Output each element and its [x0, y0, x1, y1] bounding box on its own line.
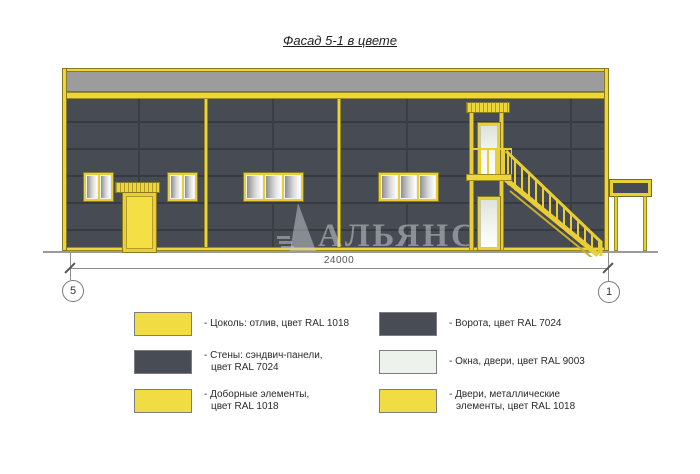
- landing-platform: [466, 174, 512, 181]
- facade-drawing-sheet: Фасад 5-1 в цвете: [0, 0, 700, 474]
- stair-handrail: [506, 151, 602, 243]
- panel-seam: [66, 121, 605, 123]
- window-pane: [86, 175, 98, 199]
- legend-label: элементы, цвет RAL 1018: [456, 401, 575, 413]
- legend-item: - Окна, двери, цвет RAL 9003: [379, 350, 585, 374]
- legend-label: - Двери, металлические: [449, 389, 575, 401]
- upper-yellow-band: [62, 92, 609, 99]
- external-staircase: [500, 145, 610, 257]
- parapet-band: [66, 71, 605, 92]
- window: [83, 172, 114, 202]
- legend-swatch: [134, 389, 192, 413]
- legend-item: - Двери, металлические элементы, цвет RA…: [379, 389, 575, 413]
- legend-label: - Стены: сэндвич-панели,: [204, 350, 323, 362]
- legend-swatch: [134, 350, 192, 374]
- window: [243, 172, 304, 202]
- dimension-line: [70, 268, 609, 269]
- left-corner-trim: [62, 68, 67, 251]
- metal-door: [122, 192, 157, 253]
- grid-axis-bubble-5: 5: [62, 280, 84, 302]
- door-leaf: [126, 196, 153, 249]
- legend-label: - Цоколь: отлив, цвет RAL 1018: [204, 318, 349, 330]
- window-pane: [184, 175, 196, 199]
- stair-tower-post: [469, 112, 474, 251]
- grid-axis-number: 1: [606, 286, 612, 298]
- window-pane: [246, 175, 263, 199]
- grid-axis-number: 5: [70, 285, 76, 297]
- drawing-title: Фасад 5-1 в цвете: [230, 33, 450, 48]
- stair-balusters: [503, 153, 601, 256]
- legend-swatch: [379, 350, 437, 374]
- window-pane: [100, 175, 112, 199]
- balcony-railing: [471, 148, 512, 177]
- stair-tower-canopy: [466, 102, 510, 113]
- window-pane: [419, 175, 436, 199]
- legend-label: цвет RAL 7024: [211, 362, 323, 374]
- yellow-column-trim: [337, 99, 341, 248]
- window-pane: [400, 175, 417, 199]
- roof-cap-trim: [62, 68, 609, 72]
- sign-frame: [610, 180, 651, 196]
- grid-axis-bubble-1: 1: [598, 281, 620, 303]
- sign-post: [614, 196, 618, 251]
- sign-post: [643, 196, 647, 251]
- legend-item: - Ворота, цвет RAL 7024: [379, 312, 561, 336]
- legend-swatch: [134, 312, 192, 336]
- window: [378, 172, 439, 202]
- legend-label: - Окна, двери, цвет RAL 9003: [449, 356, 585, 368]
- entrance-canopy: [115, 182, 160, 193]
- legend-item: - Цоколь: отлив, цвет RAL 1018: [134, 312, 349, 336]
- yellow-column-trim: [204, 99, 208, 248]
- lower-exit-door: [477, 196, 501, 251]
- window-pane: [284, 175, 301, 199]
- legend-item: - Стены: сэндвич-панели, цвет RAL 7024: [134, 350, 323, 374]
- legend-label: цвет RAL 1018: [211, 401, 309, 413]
- legend-swatch: [379, 312, 437, 336]
- window-pane: [381, 175, 398, 199]
- stair-stringer: [504, 178, 598, 255]
- window-pane: [265, 175, 282, 199]
- legend-item: - Доборные элементы, цвет RAL 1018: [134, 389, 309, 413]
- legend-swatch: [379, 389, 437, 413]
- door-leaf: [480, 199, 498, 248]
- window: [167, 172, 198, 202]
- dimension-value: 24000: [317, 255, 361, 266]
- legend-label: - Доборные элементы,: [204, 389, 309, 401]
- legend-label: - Ворота, цвет RAL 7024: [449, 318, 561, 330]
- window-pane: [170, 175, 182, 199]
